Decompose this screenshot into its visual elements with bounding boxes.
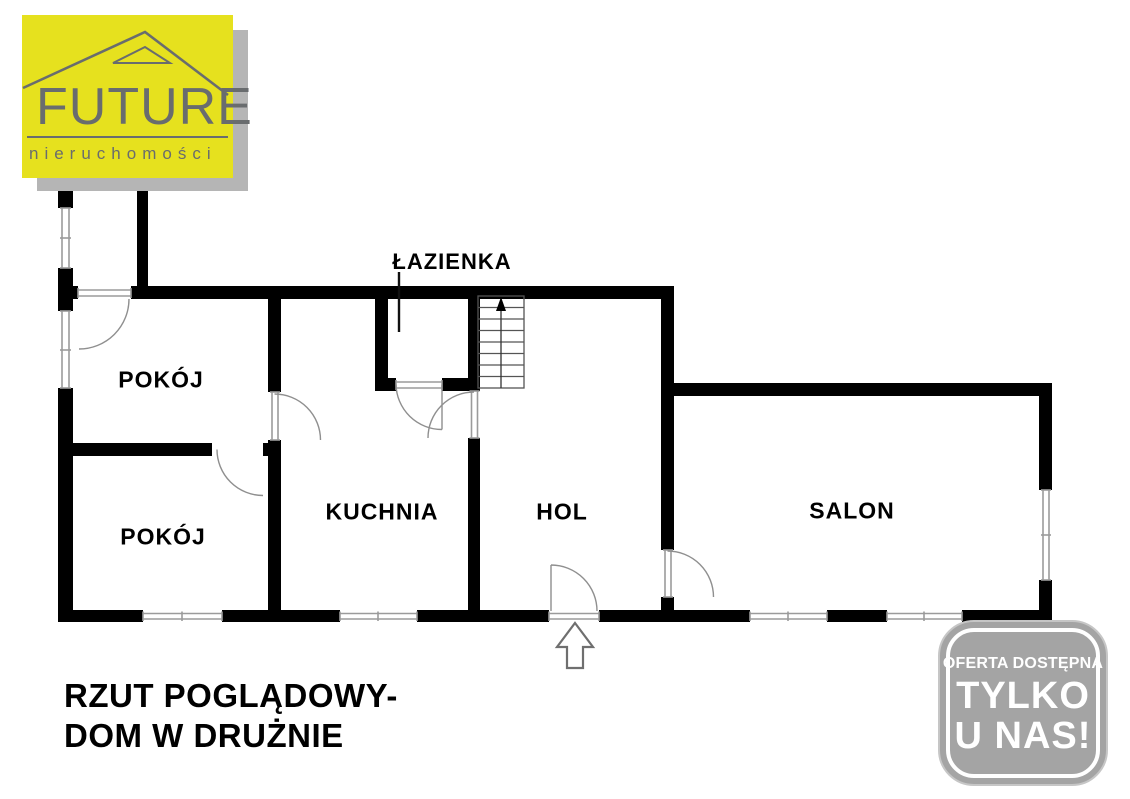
window	[750, 612, 827, 622]
door-threshold	[549, 612, 599, 622]
logo-brand-text: FUTURE	[36, 81, 253, 133]
door-arc	[668, 551, 714, 597]
plan-caption: RZUT POGLĄDOWY- DOM W DRUŻNIE	[64, 676, 398, 756]
door-arc	[79, 299, 129, 349]
door-threshold	[663, 550, 673, 597]
door-arc	[275, 394, 321, 440]
room-label-hall: HOL	[536, 499, 588, 526]
window	[60, 311, 71, 388]
badge-line-2: TYLKO	[956, 676, 1090, 716]
logo-divider	[27, 136, 228, 138]
door-threshold	[396, 380, 442, 390]
floor-plan-page: ŁAZIENKA POKÓJ POKÓJ KUCHNIA HOL SALON F…	[0, 0, 1130, 799]
door-arc	[396, 385, 442, 430]
door-arc	[428, 392, 474, 438]
door-arc	[551, 565, 597, 611]
door-threshold	[470, 391, 480, 438]
exclusive-offer-badge: OFERTA DOSTĘPNA TYLKO U NAS!	[938, 620, 1108, 786]
caption-line-1: RZUT POGLĄDOWY-	[64, 676, 398, 716]
window	[143, 612, 222, 622]
badge-line-3: U NAS!	[955, 716, 1092, 756]
window	[1041, 490, 1051, 580]
stairs-up-arrow-icon	[496, 297, 506, 311]
badge-line-1: OFERTA DOSTĘPNA	[943, 652, 1103, 676]
entrance-arrow-icon	[557, 623, 593, 668]
staircase	[478, 296, 524, 388]
room-label-room-1: POKÓJ	[118, 367, 204, 394]
door-threshold	[78, 288, 131, 298]
door-arc	[217, 450, 263, 496]
window	[60, 208, 71, 268]
room-label-room-2: POKÓJ	[120, 524, 206, 551]
caption-line-2: DOM W DRUŻNIE	[64, 716, 398, 756]
agency-logo: FUTURE nieruchomości	[22, 15, 233, 178]
windows	[60, 208, 1051, 621]
room-label-bathroom: ŁAZIENKA	[392, 249, 511, 275]
window	[887, 612, 962, 622]
logo-tagline: nieruchomości	[29, 144, 217, 164]
window	[340, 612, 417, 622]
door-threshold	[270, 392, 280, 440]
room-label-kitchen: KUCHNIA	[325, 499, 438, 526]
walls	[58, 191, 1052, 622]
room-label-living-room: SALON	[809, 498, 895, 525]
